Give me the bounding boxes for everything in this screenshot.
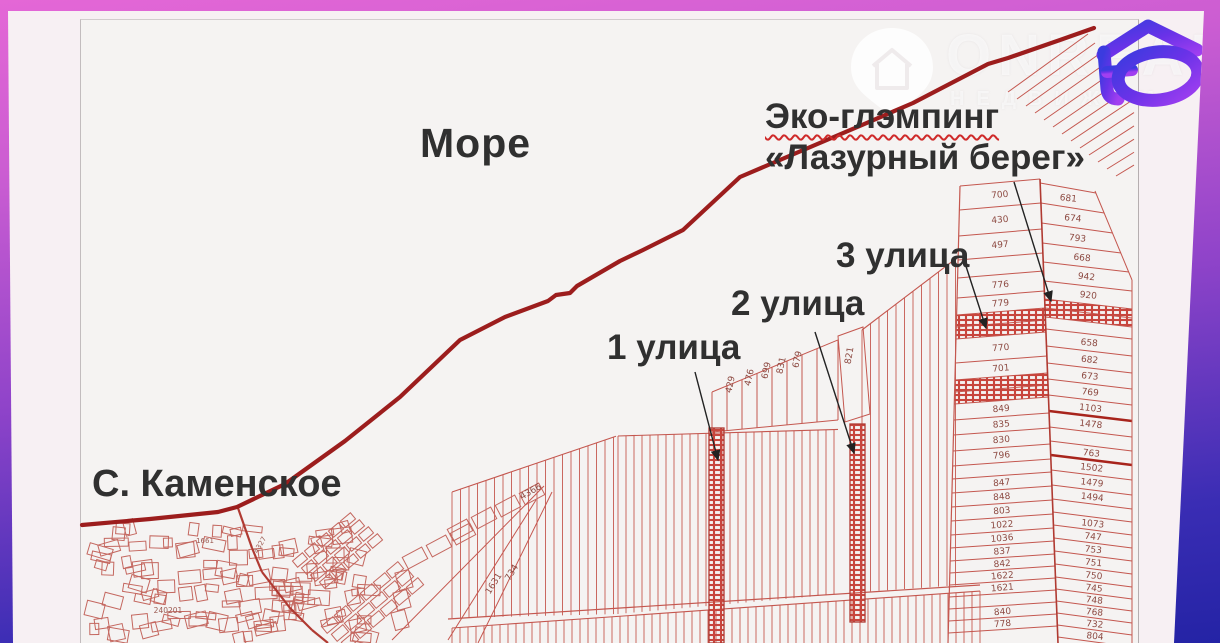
- onrealt-house-logo: [0, 0, 1220, 643]
- map-photo-page: ONREAL НЕДВИЖИМ 429476699831679821436616…: [0, 0, 1220, 643]
- map-screenshot: ONREAL НЕДВИЖИМ 429476699831679821436616…: [0, 0, 1220, 643]
